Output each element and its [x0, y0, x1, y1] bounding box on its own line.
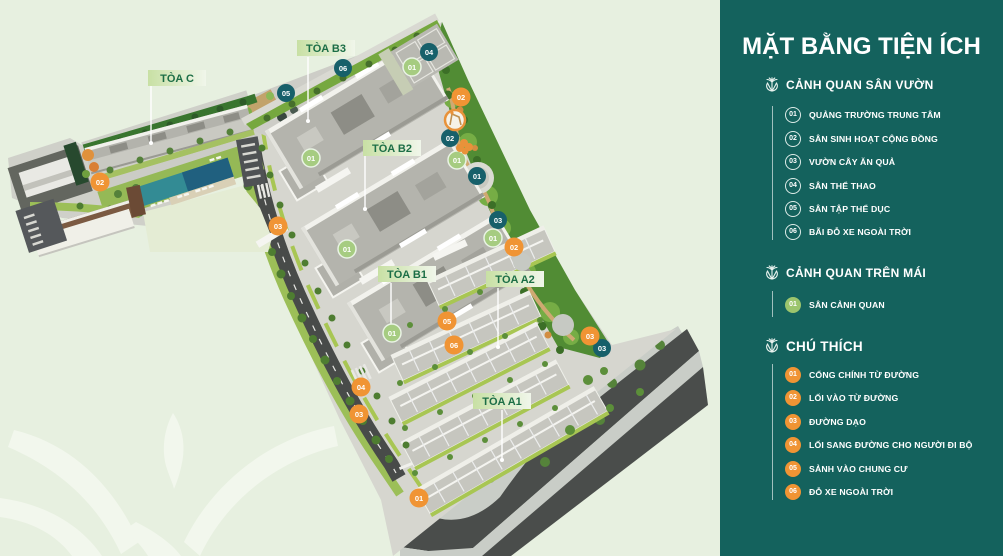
svg-text:TÒA A1: TÒA A1	[482, 395, 522, 408]
svg-text:01: 01	[388, 329, 396, 338]
svg-text:TÒA A2: TÒA A2	[495, 273, 535, 286]
svg-text:03: 03	[494, 216, 502, 225]
svg-text:03: 03	[355, 410, 363, 419]
svg-text:01: 01	[473, 172, 481, 181]
svg-text:06: 06	[450, 341, 458, 350]
svg-text:01: 01	[489, 234, 497, 243]
svg-text:03: 03	[598, 344, 606, 353]
svg-text:02: 02	[446, 134, 454, 143]
svg-text:06: 06	[339, 64, 347, 73]
svg-text:03: 03	[274, 222, 282, 231]
svg-text:01: 01	[415, 494, 423, 503]
svg-text:TÒA B3: TÒA B3	[306, 42, 346, 55]
svg-text:02: 02	[457, 93, 465, 102]
svg-text:01: 01	[408, 63, 416, 72]
svg-text:TÒA B2: TÒA B2	[372, 142, 412, 155]
svg-text:01: 01	[453, 156, 461, 165]
svg-text:02: 02	[510, 243, 518, 252]
svg-text:04: 04	[425, 48, 434, 57]
svg-text:TÒA B1: TÒA B1	[387, 268, 427, 281]
svg-text:TÒA C: TÒA C	[160, 72, 194, 85]
svg-text:03: 03	[586, 332, 594, 341]
svg-text:01: 01	[343, 245, 351, 254]
svg-text:05: 05	[282, 89, 290, 98]
svg-text:01: 01	[307, 154, 315, 163]
svg-text:02: 02	[96, 178, 104, 187]
svg-text:04: 04	[357, 383, 366, 392]
svg-text:05: 05	[443, 317, 451, 326]
